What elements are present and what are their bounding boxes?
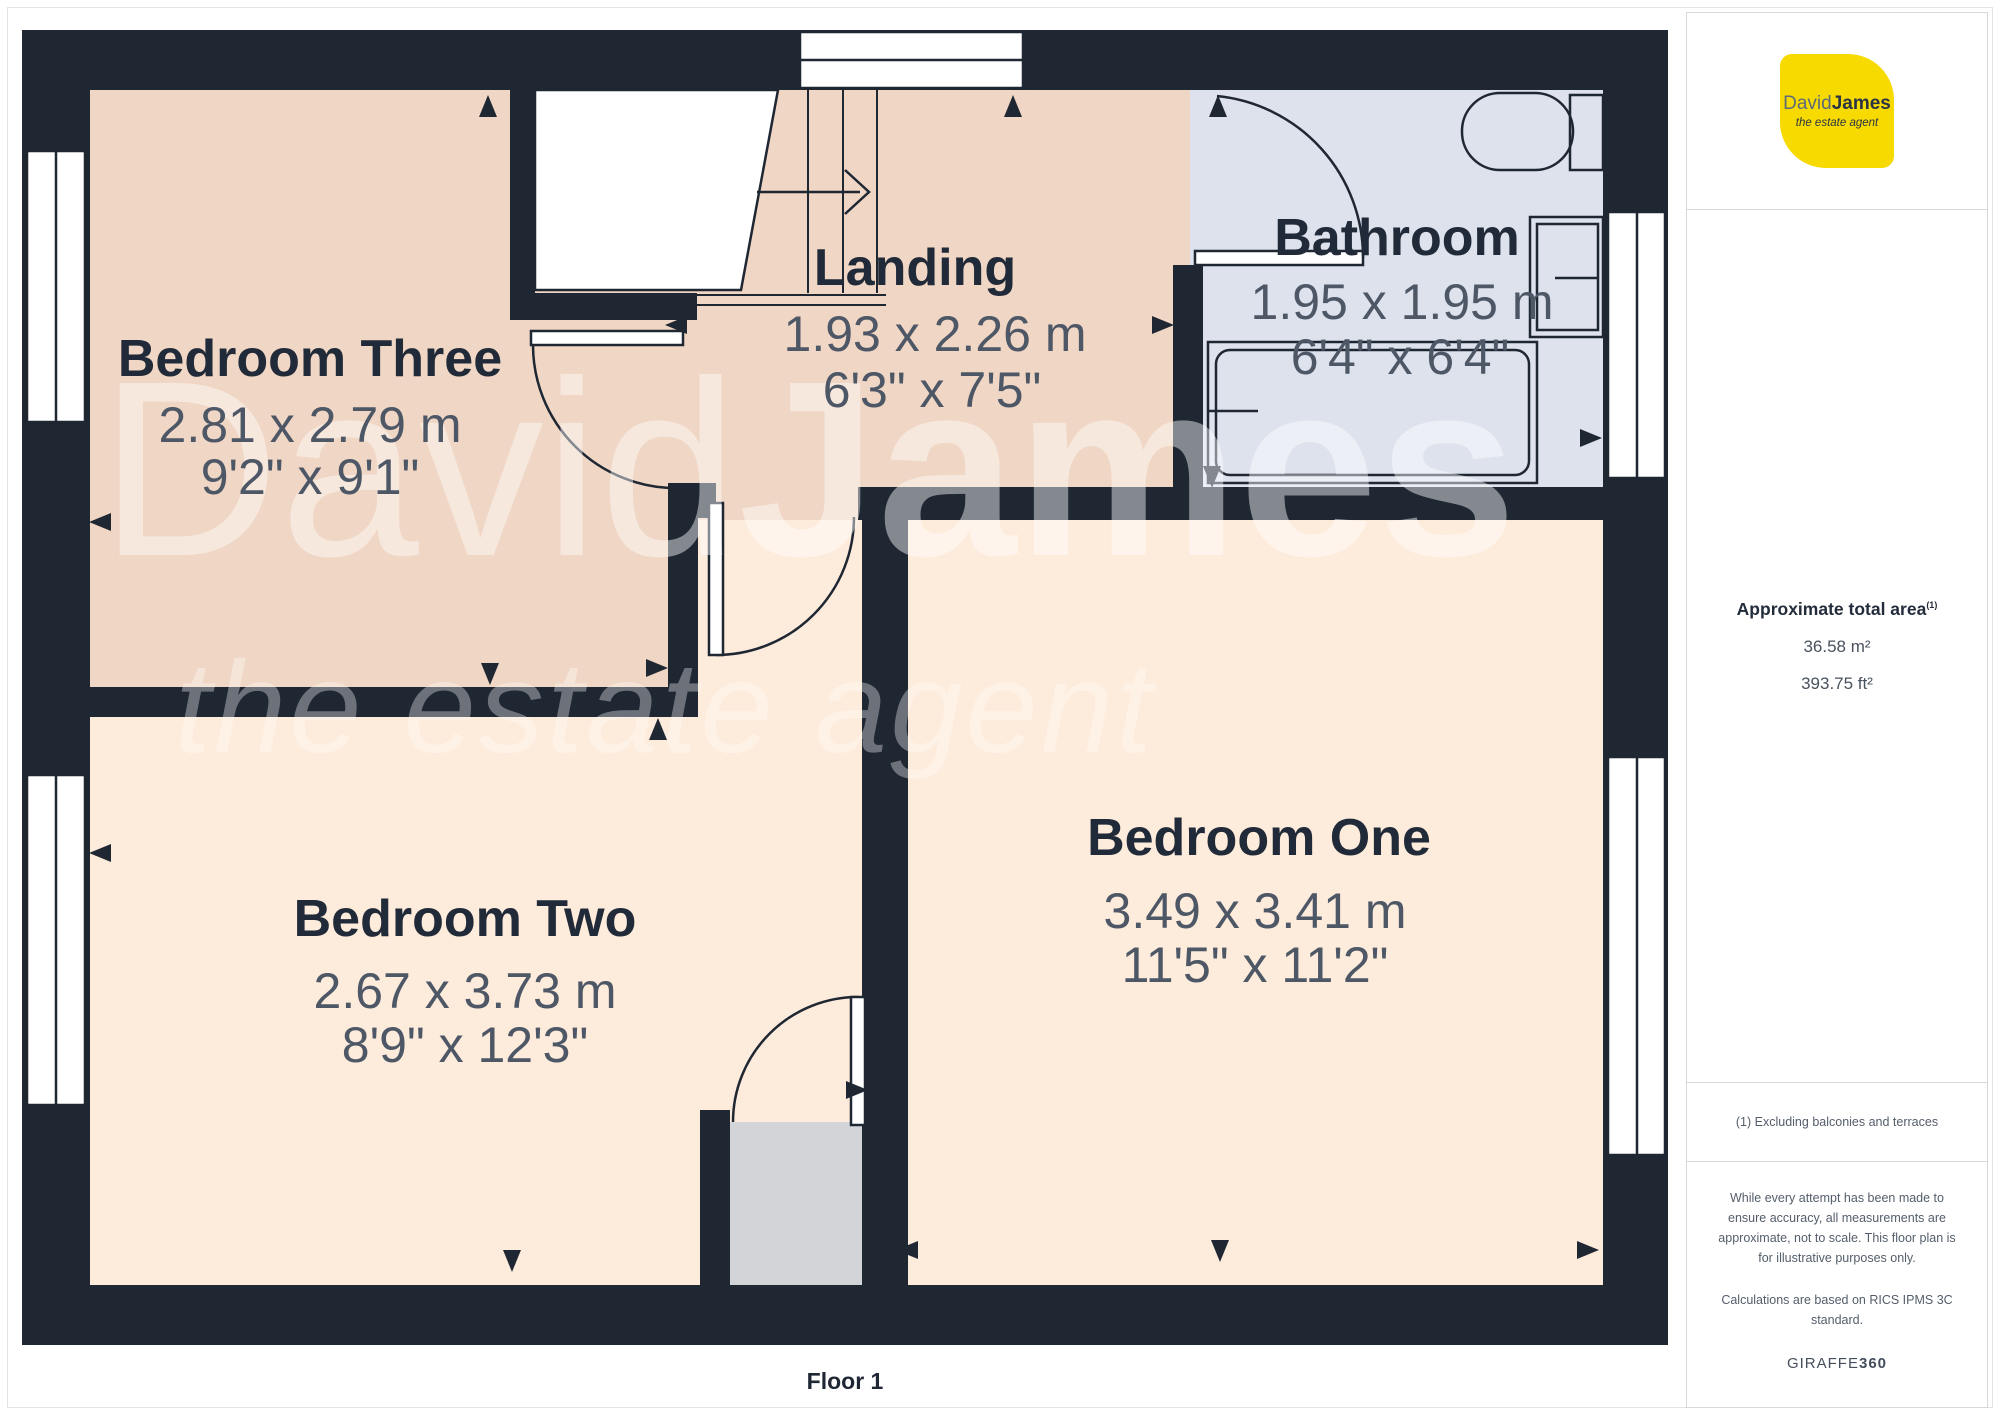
disclaimer-text: While every attempt has been made to ens…	[1715, 1188, 1959, 1268]
wall-bottom	[22, 1285, 1668, 1345]
room-imperial-landing: 6'3" x 7'5"	[823, 362, 1042, 418]
room-name-bedroom-one: Bedroom One	[1087, 809, 1431, 867]
room-metric-bedroom-two: 2.67 x 3.73 m	[314, 963, 617, 1019]
logo-brand-bold: James	[1832, 93, 1891, 114]
room-name-landing: Landing	[814, 239, 1016, 297]
footnote-section: (1) Excluding balconies and terraces	[1687, 1083, 1987, 1162]
room-imperial-bedroom-three: 9'2" x 9'1"	[201, 449, 420, 505]
estate-agent-logo: DavidJames the estate agent	[1780, 54, 1894, 168]
cupboard-floor	[730, 1122, 868, 1285]
logo-section: DavidJames the estate agent	[1687, 13, 1987, 210]
room-metric-bedroom-one: 3.49 x 3.41 m	[1104, 883, 1407, 939]
floor-label: Floor 1	[645, 1368, 1045, 1395]
area-title-text: Approximate total area	[1737, 599, 1927, 619]
area-ft2: 393.75 ft²	[1801, 674, 1873, 694]
room-metric-bathroom: 1.95 x 1.95 m	[1251, 274, 1554, 330]
room-metric-landing: 1.93 x 2.26 m	[784, 306, 1087, 362]
area-m2: 36.58 m²	[1803, 637, 1870, 657]
area-title-superscript: (1)	[1926, 600, 1937, 610]
stair-void	[535, 90, 778, 290]
area-section: Approximate total area(1) 36.58 m² 393.7…	[1687, 210, 1987, 1083]
watermark-tagline: the estate agent	[175, 634, 1157, 780]
wall-cupboard-left	[700, 1110, 730, 1285]
room-name-bathroom: Bathroom	[1274, 209, 1520, 267]
info-sidebar: DavidJames the estate agent Approximate …	[1686, 12, 1988, 1408]
room-imperial-bathroom: 6'4" x 6'4"	[1291, 329, 1510, 385]
room-imperial-bedroom-one: 11'5" x 11'2"	[1122, 937, 1389, 993]
room-name-bedroom-two: Bedroom Two	[294, 890, 637, 948]
wall-bedroom2-bedroom1	[862, 490, 908, 1285]
floorplan-page: { "floor_label": "Floor 1", "rooms": [ {…	[0, 0, 2000, 1415]
logo-brand-light: David	[1783, 93, 1832, 114]
area-title: Approximate total area(1)	[1737, 599, 1938, 620]
wall-stairwell-left	[510, 90, 535, 320]
standard-text: Calculations are based on RICS IPMS 3C s…	[1715, 1290, 1959, 1330]
room-name-bedroom-three: Bedroom Three	[118, 330, 502, 388]
logo-tagline: the estate agent	[1796, 117, 1878, 129]
room-imperial-bedroom-two: 8'9" x 12'3"	[342, 1017, 588, 1073]
disclaimer-section: While every attempt has been made to ens…	[1687, 1162, 1987, 1407]
room-metric-bedroom-three: 2.81 x 2.79 m	[159, 397, 462, 453]
wall-stairwell-bottom	[520, 293, 697, 320]
door-leaf-cupboard	[851, 997, 865, 1125]
logo-brand-name: DavidJames	[1783, 93, 1891, 115]
giraffe-360: 360	[1859, 1355, 1887, 1372]
giraffe-text: GIRAFFE	[1787, 1355, 1859, 1372]
giraffe360-brand: GIRAFFE360	[1715, 1354, 1959, 1374]
